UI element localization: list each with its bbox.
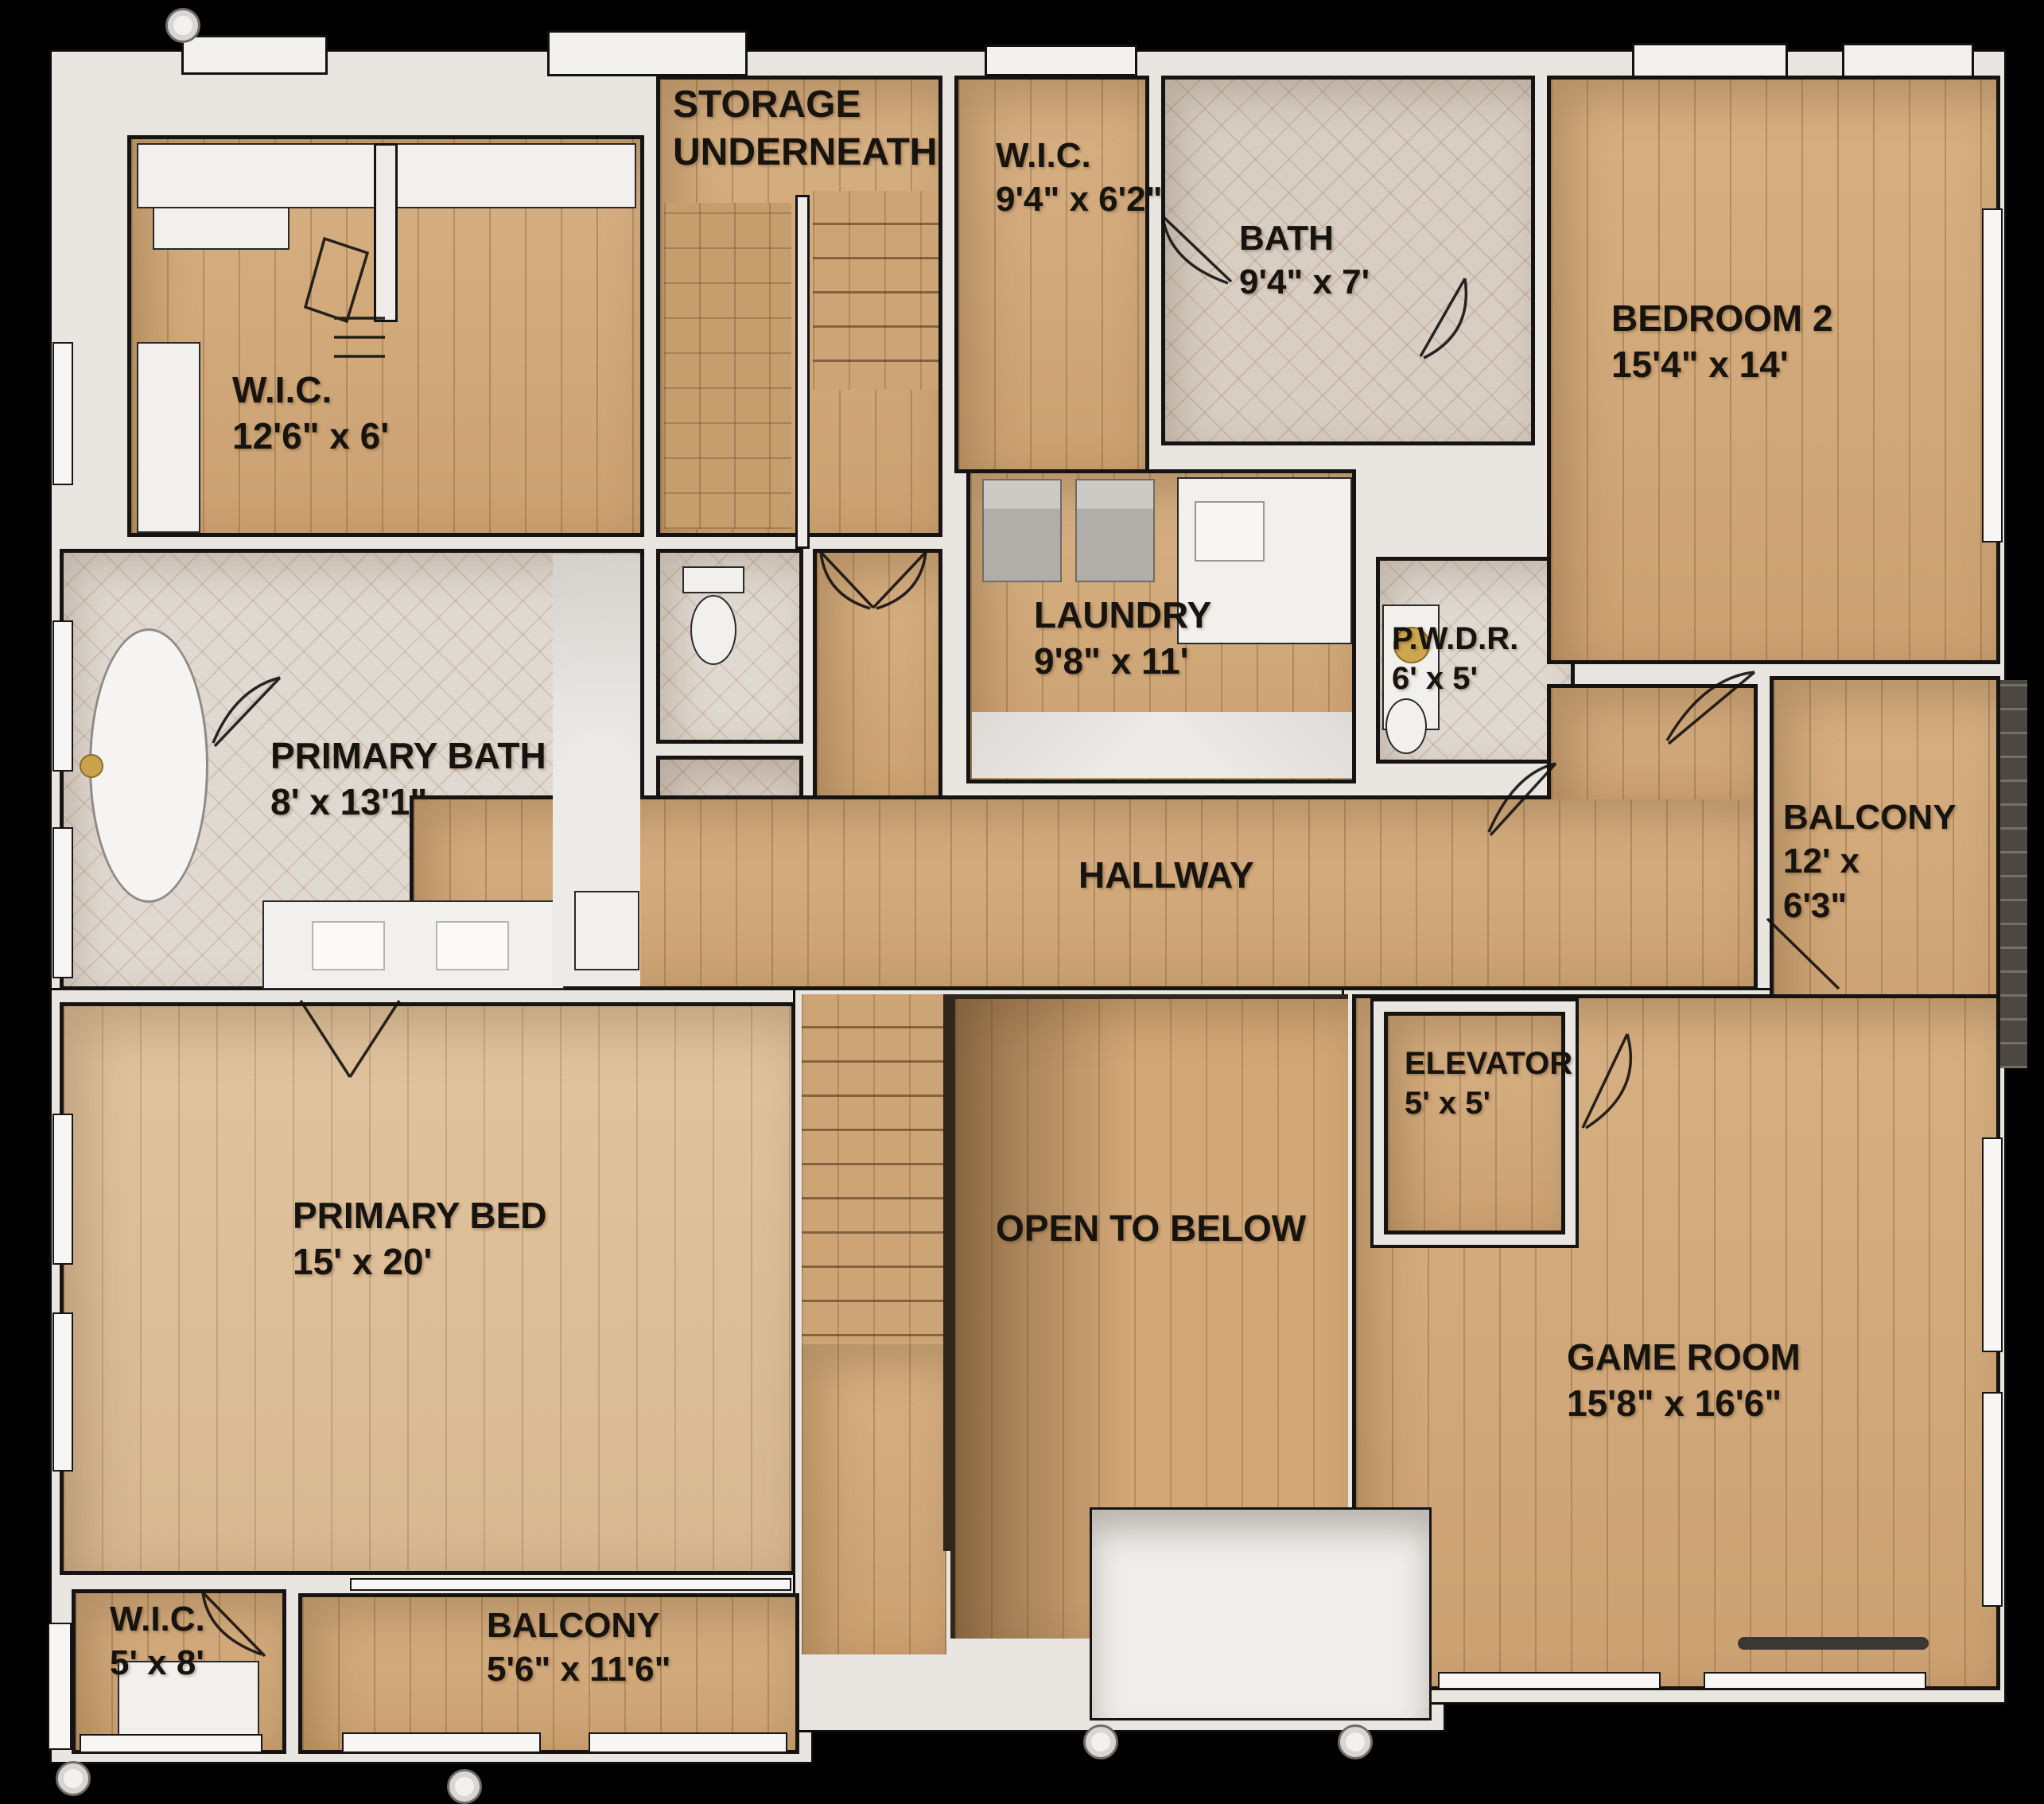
- window-bottom-2: [589, 1732, 787, 1753]
- room-label-balcony-right: BALCONY12' x6'3": [1783, 795, 1957, 927]
- room-label-balcony-bottom: BALCONY5'6" x 11'6": [487, 1604, 671, 1692]
- window-top-4: [1632, 43, 1788, 78]
- vanity-sink-left: [312, 921, 385, 970]
- exterior-light-bottom-left-1: [56, 1761, 91, 1796]
- window-top-2: [547, 30, 748, 76]
- room-label-primary-wic: W.I.C.12'6" x 6': [232, 367, 389, 460]
- room-label-primary-bed: PRIMARY BED15' x 20': [293, 1193, 546, 1285]
- room-label-elevator: ELEVATOR5' x 5': [1405, 1044, 1572, 1124]
- pendant-light-2: [1338, 1724, 1373, 1759]
- toilet-bowl: [690, 595, 736, 665]
- room-label-wic-small: W.I.C.5' x 8': [110, 1597, 205, 1685]
- window-top-1: [181, 35, 328, 75]
- room-label-hallway: HALLWAY: [1078, 853, 1254, 899]
- stair-railing-wall: [795, 195, 810, 549]
- room-label-game-room: GAME ROOM15'8" x 16'6": [1567, 1335, 1801, 1427]
- window-left-6: [48, 1623, 72, 1750]
- room-label-laundry: LAUNDRY9'8" x 11': [1034, 593, 1211, 685]
- room-label-hall-wic: W.I.C.9'4" x 6'2": [996, 134, 1162, 222]
- closet-shelf-left: [137, 342, 200, 533]
- dryer-fixture: [1075, 479, 1155, 582]
- toilet-tank: [682, 566, 744, 593]
- window-right-3: [1982, 1392, 2003, 1607]
- window-left-2: [52, 620, 73, 772]
- room-label-open-to-below: OPEN TO BELOW: [996, 1206, 1306, 1252]
- balcony-slider-door: [350, 1578, 791, 1591]
- floor-plan-canvas: W.I.C.12'6" x 6' STORAGEUNDERNEATH W.I.C…: [0, 0, 2044, 1804]
- exterior-light-top-left: [165, 8, 200, 43]
- room-label-storage: STORAGEUNDERNEATH: [673, 81, 937, 177]
- exterior-light-bottom-left-2: [447, 1769, 482, 1804]
- laundry-marble-floor: [972, 712, 1352, 778]
- window-left-5: [52, 1312, 73, 1472]
- stair-lower-landing: [802, 1344, 946, 1654]
- window-top-5: [1842, 43, 1974, 78]
- laundry-sink: [1195, 501, 1265, 562]
- window-left-1: [52, 342, 73, 485]
- balcony-screen-edge: [2000, 680, 2027, 1068]
- closet-divider-wall: [374, 143, 398, 322]
- window-top-3: [985, 45, 1137, 76]
- room-label-bedroom2: BEDROOM 215'4" x 14': [1611, 296, 1833, 388]
- room-label-powder: P.W.D.R.6' x 5': [1392, 619, 1518, 699]
- shower-vanity-sink: [574, 891, 639, 970]
- double-vanity-fixture: [262, 900, 565, 989]
- room-label-primary-bath: PRIMARY BATH8' x 13'1": [270, 733, 546, 826]
- pendant-light-1: [1083, 1724, 1118, 1759]
- window-game-bottom-2: [1704, 1672, 1926, 1689]
- bathtub-fixture: [89, 628, 208, 903]
- window-game-bottom-1: [1438, 1672, 1661, 1689]
- stair-railing-down: [943, 994, 951, 1551]
- game-media-console: [1738, 1637, 1929, 1650]
- window-right-2: [1982, 1137, 2003, 1352]
- stair-landing: [813, 549, 942, 803]
- washer-fixture: [982, 479, 1062, 582]
- tub-faucet-icon: [80, 754, 103, 778]
- storage-below-tiles: [664, 203, 791, 529]
- entry-roof-below: [1090, 1507, 1432, 1720]
- window-left-4: [52, 1114, 73, 1265]
- window-left-3: [52, 827, 73, 978]
- powder-toilet-bowl: [1385, 698, 1427, 754]
- window-bottom-1: [342, 1732, 541, 1753]
- vanity-sink-right: [436, 921, 509, 970]
- room-primary-bed: [60, 1002, 795, 1575]
- window-right-1: [1982, 208, 2003, 542]
- window-bottom-3: [80, 1734, 262, 1753]
- stair-treads-up: [813, 191, 938, 390]
- stair-treads-down: [802, 994, 946, 1344]
- hallway-nook: [1547, 684, 1758, 799]
- room-label-bath: BATH9'4" x 7': [1239, 216, 1370, 305]
